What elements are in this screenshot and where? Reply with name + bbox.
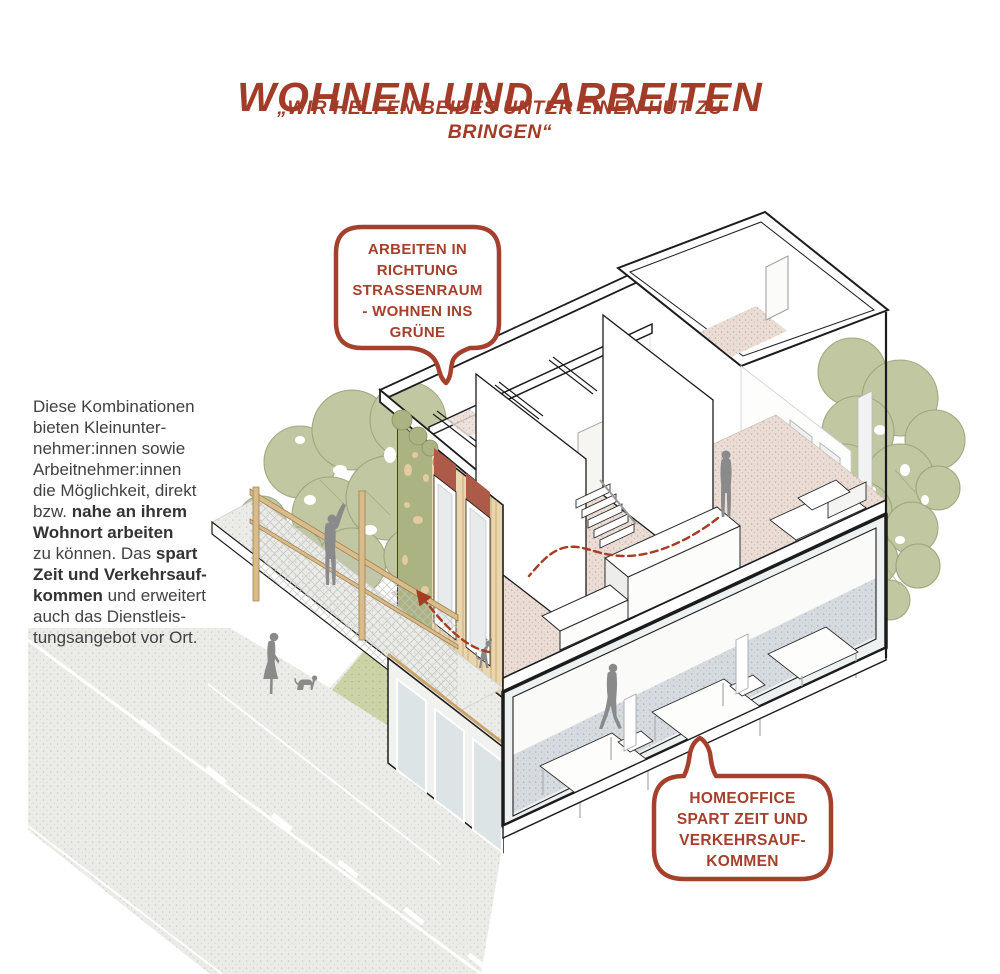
paragraph-line: die Möglichkeit, direkt bbox=[33, 480, 233, 501]
paragraph-line: tungsangebot vor Ort. bbox=[33, 627, 233, 648]
paragraph-line: Zeit und Verkehrsauf- bbox=[33, 564, 233, 585]
divider-panel bbox=[736, 634, 748, 694]
paragraph-line: auch das Dienstleis- bbox=[33, 606, 233, 627]
paragraph-line: kommen und erweitert bbox=[33, 585, 233, 606]
paragraph-line: Wohnort arbeiten bbox=[33, 522, 233, 543]
paragraph-line: bzw. nahe an ihrem bbox=[33, 501, 233, 522]
fence-post bbox=[253, 487, 259, 601]
paragraph-line: Arbeitnehmer:innen bbox=[33, 459, 233, 480]
page-subtitle: „WIR HELFEN BEIDES UNTER EINEN HUT ZU BR… bbox=[0, 96, 1000, 144]
subtitle-line: „WIR HELFEN BEIDES UNTER EINEN HUT ZU bbox=[0, 96, 1000, 120]
bedroom-door bbox=[766, 256, 788, 320]
paragraph-line: nehmer:innen sowie bbox=[33, 438, 233, 459]
paragraph-line: zu können. Das spart bbox=[33, 543, 233, 564]
fence-post bbox=[359, 491, 365, 640]
bubble-street-label: ARBEITEN IN RICHTUNG STRASSENRAUM - WOHN… bbox=[336, 240, 499, 344]
poster: WOHNEN UND ARBEITEN „WIR HELFEN BEIDES U… bbox=[0, 0, 1000, 974]
intro-paragraph: Diese Kombinationen bieten Kleinunter- n… bbox=[33, 396, 233, 648]
paragraph-line: Diese Kombinationen bbox=[33, 396, 233, 417]
divider-panel bbox=[624, 694, 636, 751]
paragraph-line: bieten Kleinunter- bbox=[33, 417, 233, 438]
subtitle-line: BRINGEN“ bbox=[0, 120, 1000, 144]
bubble-homeoffice-label: HOMEOFFICE SPART ZEIT UND VERKEHRSAUF- K… bbox=[654, 788, 831, 872]
